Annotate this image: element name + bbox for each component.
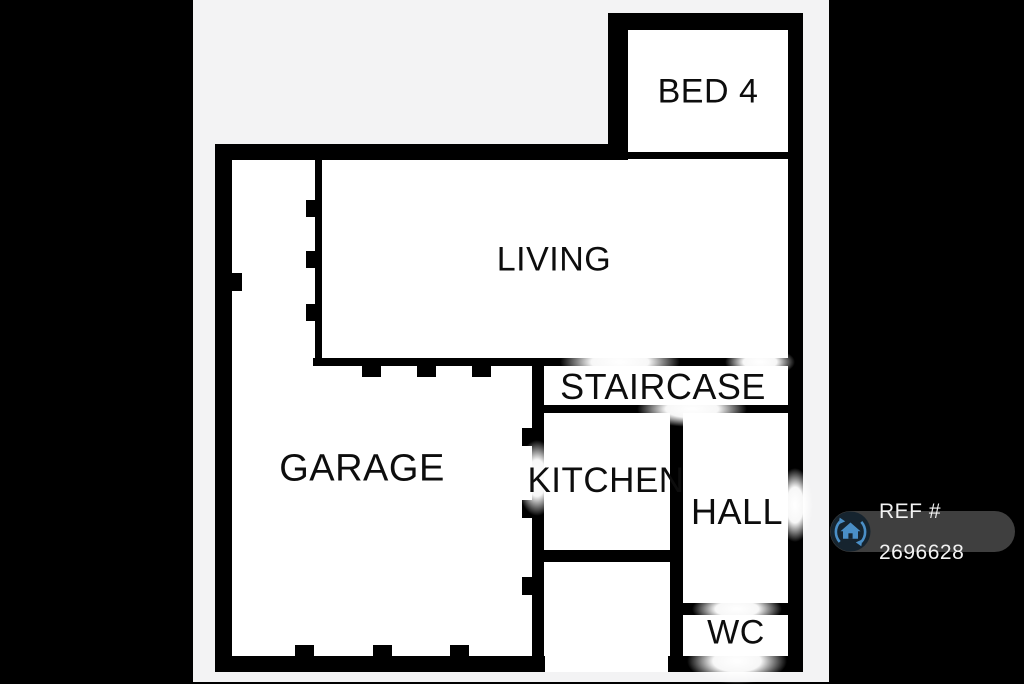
wall-tick: [306, 200, 315, 217]
wall-outer-left: [215, 144, 232, 672]
house-sync-icon: [830, 511, 871, 552]
wall-outer-bottom-garage: [215, 656, 545, 672]
wall-living-bottom: [313, 358, 788, 366]
wall-tick: [232, 273, 242, 291]
wall-outer-bottom-wc: [668, 656, 803, 672]
wall-kitchen-bottom: [532, 550, 683, 562]
room-label-staircase: STAIRCASE: [560, 366, 766, 408]
wall-bed4-left: [608, 13, 628, 160]
wall-tick: [417, 366, 436, 377]
ref-number: REF # 2696628: [879, 491, 1015, 573]
wall-tick: [522, 577, 532, 595]
wall-outer-right: [788, 13, 803, 672]
wall-bed4-bottom: [628, 152, 788, 159]
room-label-hall: HALL: [691, 491, 783, 533]
room-label-kitchen: KITCHEN: [527, 461, 684, 501]
wall-kitchen-hall: [670, 405, 683, 672]
wall-tick: [306, 304, 315, 321]
room-label-bed4: BED 4: [658, 73, 759, 112]
wall-tick: [522, 500, 532, 518]
wall-tick: [295, 645, 314, 656]
wall-garage-kitchen: [532, 358, 544, 672]
room-label-living: LIVING: [497, 241, 611, 280]
wall-tick: [450, 645, 469, 656]
wall-outer-top: [215, 144, 628, 160]
wall-tick: [522, 428, 532, 446]
wall-tick: [306, 251, 315, 268]
room-label-wc: WC: [707, 614, 765, 653]
wall-tick: [472, 366, 491, 377]
letterbox-right: [829, 0, 1024, 682]
wall-bed4-top: [608, 13, 803, 30]
wall-tick: [362, 366, 381, 377]
wall-tick: [373, 645, 392, 656]
floorplan-canvas: BED 4 LIVING STAIRCASE GARAGE KITCHEN HA…: [193, 0, 829, 682]
room-label-garage: GARAGE: [279, 448, 445, 491]
letterbox-left: [0, 0, 193, 682]
ref-badge: REF # 2696628: [830, 511, 1015, 552]
wall-living-left: [315, 160, 322, 358]
